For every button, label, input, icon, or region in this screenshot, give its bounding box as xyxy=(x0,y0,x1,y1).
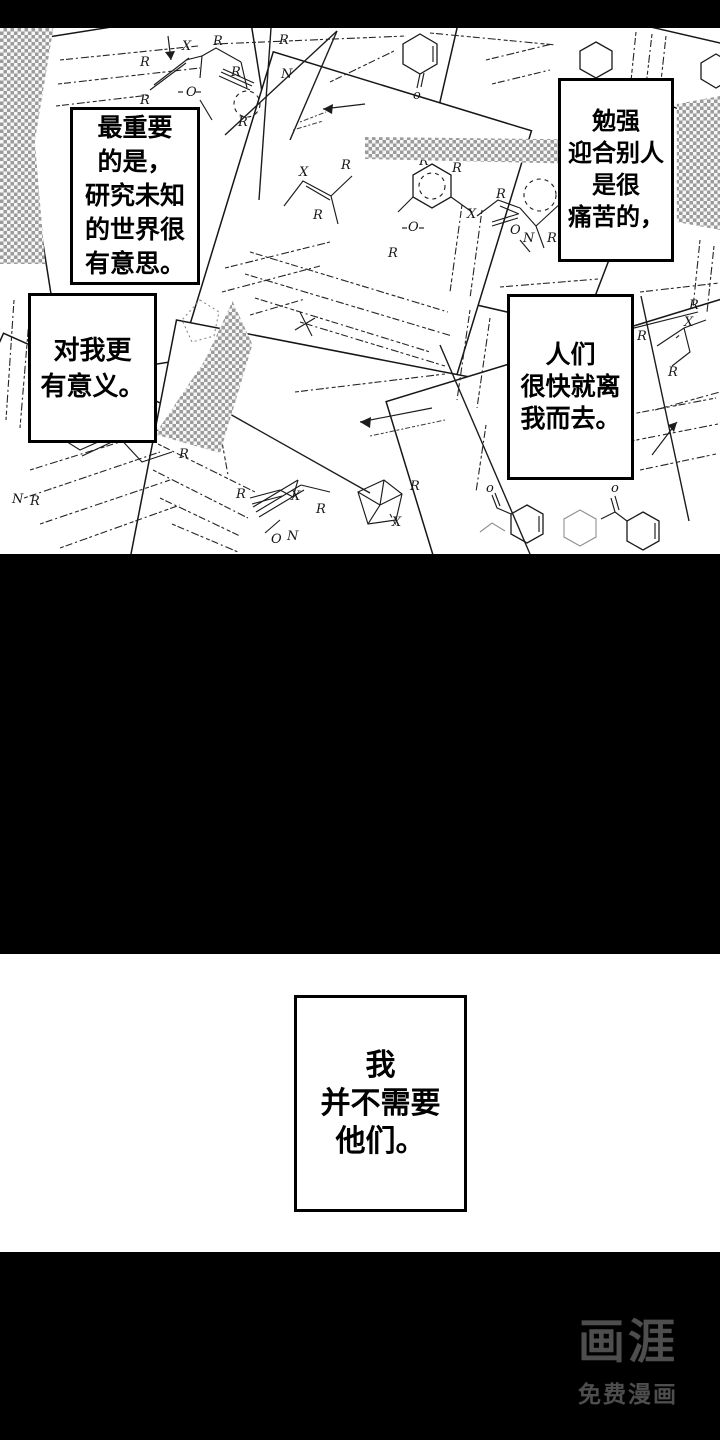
watermark-logo: 画涯 xyxy=(578,1316,678,1368)
speech-line: 并不需要 xyxy=(321,1085,441,1123)
chem-label: X xyxy=(181,39,192,54)
speech-line: 的是， xyxy=(97,145,172,179)
chem-label: R xyxy=(178,447,189,462)
chem-label: N xyxy=(11,492,24,507)
chem-label: R xyxy=(409,479,420,494)
chem-label: R xyxy=(636,329,647,344)
chem-label: R xyxy=(139,55,150,70)
chem-label: R xyxy=(312,208,323,223)
chem-label: X xyxy=(466,207,477,222)
panel-papers: R X R R O R R R N X R R R R X R R R X R xyxy=(0,0,720,554)
chem-label: R xyxy=(546,231,557,246)
chem-label: X xyxy=(391,515,402,530)
speech-line: 研究未知 xyxy=(85,179,185,213)
chem-label: o xyxy=(611,481,619,496)
speech-bubble-1: 最重要 的是， 研究未知 的世界很 有意思。 xyxy=(70,107,200,285)
speech-line: 他们。 xyxy=(336,1123,426,1161)
speech-line: 人们 xyxy=(545,339,595,371)
speech-bubble-3: 勉强 迎合别人 是很 痛苦的， xyxy=(558,78,674,262)
chem-label: N xyxy=(280,67,293,82)
speech-line: 痛苦的， xyxy=(568,202,664,234)
speech-line: 对我更 xyxy=(53,332,131,368)
chem-label: X xyxy=(298,165,309,180)
speech-bubble-2: 对我更 有意义。 xyxy=(28,293,157,443)
top-gutter-bar xyxy=(0,0,720,28)
chem-label: R xyxy=(340,158,351,173)
speech-line: 最重要 xyxy=(97,111,172,145)
speech-line: 是很 xyxy=(592,170,640,202)
comic-page: R X R R O R R R N X R R R R X R R R X R xyxy=(0,0,720,1440)
chem-label: O xyxy=(510,223,521,238)
speech-line: 勉强 xyxy=(592,106,640,138)
chem-label: R xyxy=(212,34,223,49)
chem-label: R xyxy=(667,365,678,380)
watermark: 画涯 免费漫画 xyxy=(578,1316,678,1409)
speech-line: 很快就离 xyxy=(520,371,620,403)
chem-label: X xyxy=(683,315,694,330)
chem-label: N xyxy=(522,231,535,246)
chem-label: R xyxy=(139,93,150,108)
speech-line: 有意思。 xyxy=(85,247,185,281)
halftone-shade-right xyxy=(672,96,720,230)
chem-label: O xyxy=(271,532,282,547)
speech-bubble-5: 我 并不需要 他们。 xyxy=(294,995,467,1212)
chem-label: o xyxy=(413,88,421,103)
speech-line: 迎合别人 xyxy=(568,138,664,170)
chem-label: O xyxy=(186,85,197,100)
chem-label: R xyxy=(235,487,246,502)
chem-label: R xyxy=(688,298,699,313)
chem-label: o xyxy=(486,481,494,496)
chem-label: R xyxy=(29,494,40,509)
speech-line: 我 xyxy=(366,1047,396,1085)
chem-label: R xyxy=(387,246,398,261)
chem-label: O xyxy=(408,220,419,235)
chem-label: N xyxy=(286,529,299,544)
chem-label: X xyxy=(290,489,301,504)
chem-label: R xyxy=(237,115,248,130)
watermark-tagline: 免费漫画 xyxy=(578,1375,678,1409)
speech-line: 有意义。 xyxy=(40,368,144,404)
speech-line: 的世界很 xyxy=(85,213,185,247)
speech-line: 我而去。 xyxy=(520,403,620,435)
chem-label: R xyxy=(451,161,462,176)
chem-label: R xyxy=(230,65,241,80)
chem-label: R xyxy=(315,502,326,517)
chem-label: R xyxy=(495,187,506,202)
speech-bubble-4: 人们 很快就离 我而去。 xyxy=(507,294,634,480)
chem-label: R xyxy=(278,33,289,48)
